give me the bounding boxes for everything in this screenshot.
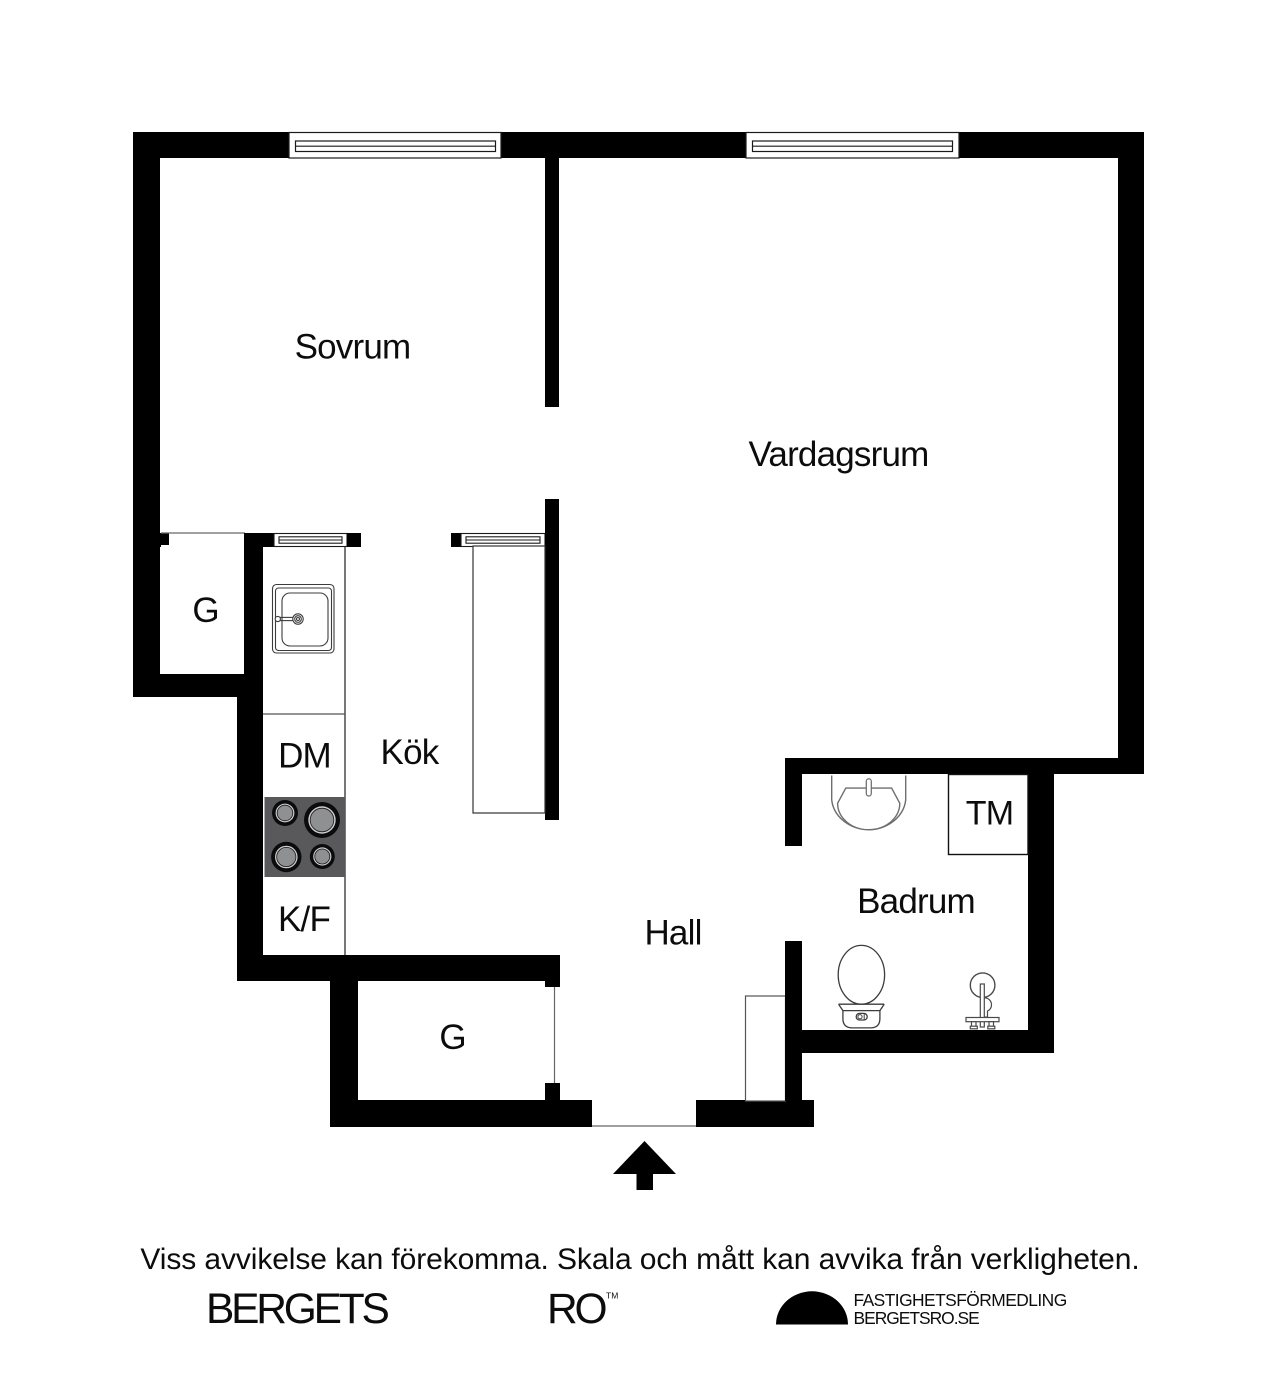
svg-text:Vardagsrum: Vardagsrum	[748, 435, 928, 474]
svg-text:FASTIGHETSFÖRMEDLING: FASTIGHETSFÖRMEDLING	[854, 1290, 1067, 1310]
svg-text:G: G	[439, 1018, 466, 1057]
svg-text:Badrum: Badrum	[857, 882, 975, 921]
svg-text:DM: DM	[278, 737, 331, 776]
svg-text:Kök: Kök	[381, 733, 440, 772]
svg-text:Hall: Hall	[644, 914, 701, 953]
svg-text:TM: TM	[966, 795, 1014, 833]
svg-text:TM: TM	[606, 1291, 618, 1301]
svg-text:Viss avvikelse kan förekomma.: Viss avvikelse kan förekomma. Skala och …	[140, 1243, 1139, 1276]
svg-text:RO: RO	[547, 1286, 606, 1333]
svg-text:BERGETSRO.SE: BERGETSRO.SE	[854, 1308, 980, 1328]
svg-text:K/F: K/F	[278, 900, 330, 939]
svg-text:BERGETS: BERGETS	[206, 1286, 389, 1333]
svg-text:Sovrum: Sovrum	[295, 328, 411, 367]
svg-text:G: G	[192, 591, 219, 630]
